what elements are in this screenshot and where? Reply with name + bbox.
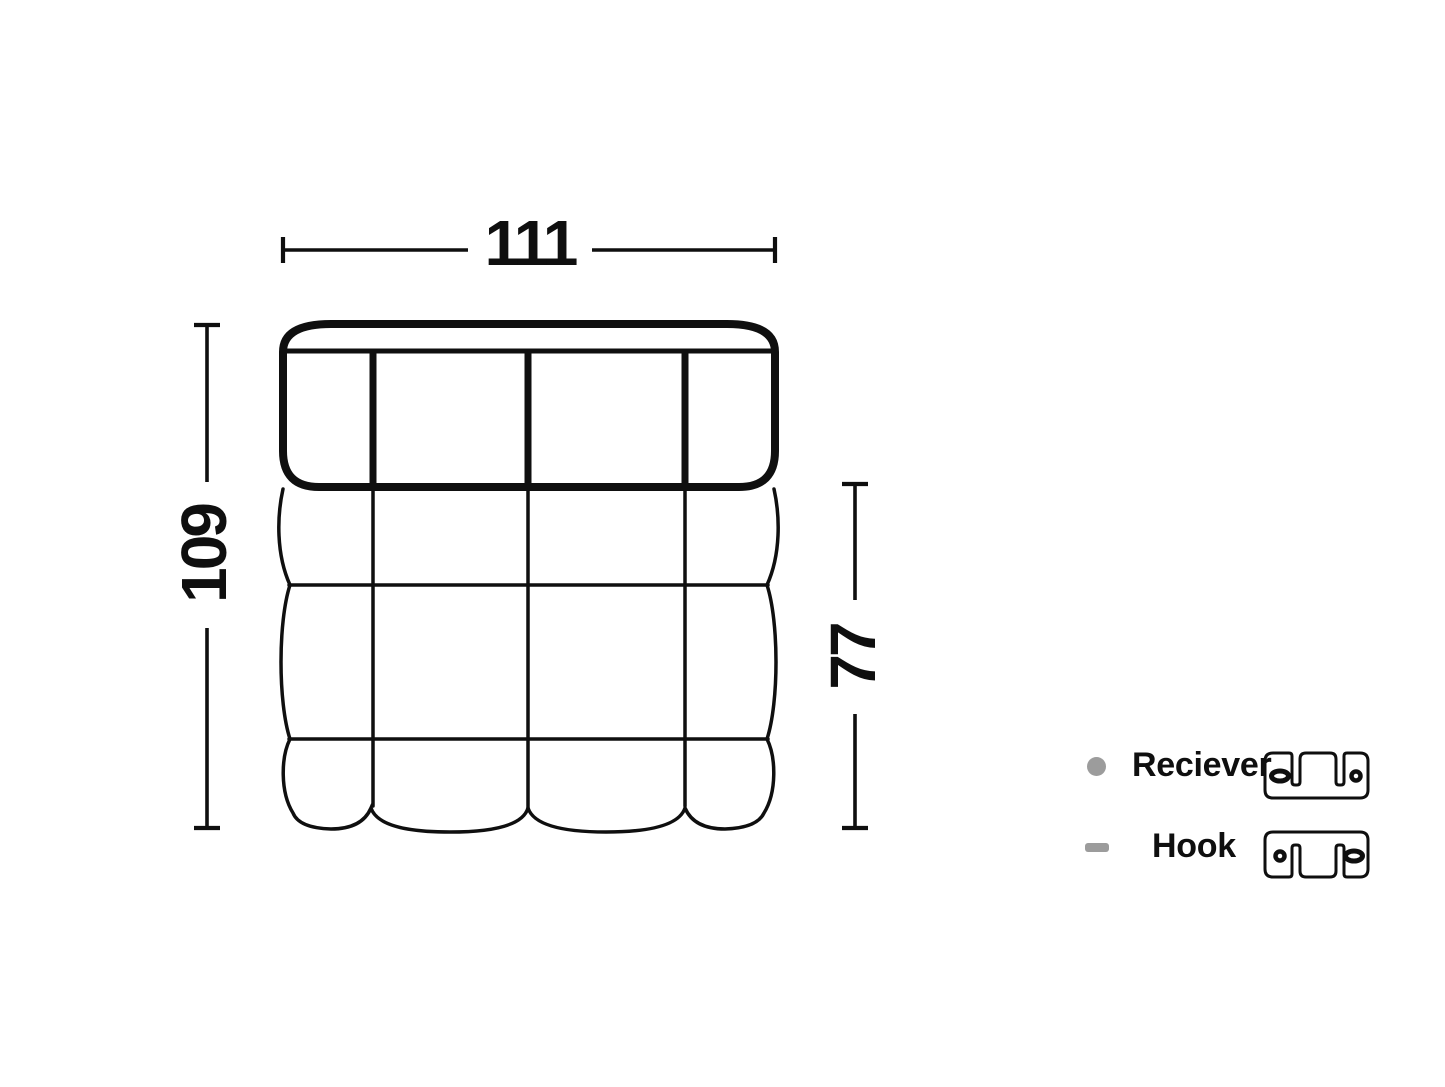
hook-slot-hole	[1346, 851, 1363, 861]
seat-depth-dimension-label: 77	[816, 624, 890, 689]
dimension-diagram: 111 109 77 Reciever Hook	[0, 0, 1445, 1087]
hook-symbol-dash	[1085, 843, 1109, 852]
sofa-backrest-rail	[283, 324, 775, 487]
sofa-seat-grid	[279, 487, 778, 832]
sofa-module-drawing	[279, 324, 778, 832]
sofa-seat-vertical-seams	[373, 487, 685, 808]
receiver-bracket-icon	[1265, 753, 1368, 798]
width-dimension-label: 111	[485, 206, 576, 280]
receiver-round-hole	[1352, 772, 1361, 781]
depth-dimension-label: 109	[167, 505, 241, 603]
hook-round-hole	[1276, 852, 1285, 861]
receiver-slot-hole	[1272, 771, 1289, 781]
hook-bracket-icon	[1265, 832, 1368, 877]
receiver-symbol-dot	[1087, 757, 1106, 776]
receiver-legend-label: Reciever	[1132, 747, 1271, 783]
hook-legend-label: Hook	[1152, 828, 1236, 864]
